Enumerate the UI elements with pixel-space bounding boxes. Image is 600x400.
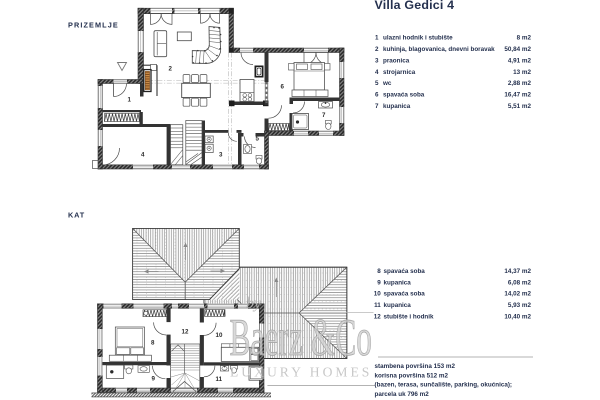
svg-text:ulazni hodnik i stubište: ulazni hodnik i stubište bbox=[383, 35, 453, 42]
svg-text:5: 5 bbox=[256, 136, 260, 143]
svg-text:Baerz &Co: Baerz &Co bbox=[230, 309, 372, 367]
svg-text:13 m2: 13 m2 bbox=[513, 69, 531, 76]
svg-text:KAT: KAT bbox=[68, 211, 85, 220]
svg-text:8: 8 bbox=[151, 340, 155, 347]
svg-text:parcela uk 796 m2: parcela uk 796 m2 bbox=[375, 391, 430, 398]
svg-text:kupanica: kupanica bbox=[384, 302, 412, 309]
svg-text:spavaća soba: spavaća soba bbox=[383, 92, 425, 99]
svg-text:6: 6 bbox=[281, 84, 285, 91]
svg-text:2: 2 bbox=[169, 66, 173, 73]
svg-text:12: 12 bbox=[182, 329, 189, 336]
svg-text:LUXURY HOMES: LUXURY HOMES bbox=[230, 365, 372, 380]
svg-text:9: 9 bbox=[152, 376, 156, 383]
svg-text:5: 5 bbox=[375, 80, 379, 87]
svg-text:7: 7 bbox=[322, 112, 326, 119]
svg-text:praonica: praonica bbox=[383, 57, 410, 64]
svg-text:stambena površina 153 m2: stambena površina 153 m2 bbox=[375, 363, 456, 370]
svg-text:strojarnica: strojarnica bbox=[383, 69, 416, 76]
svg-text:spavaća soba: spavaća soba bbox=[384, 291, 426, 298]
svg-text:14,37 m2: 14,37 m2 bbox=[504, 268, 531, 275]
svg-text:6,08 m2: 6,08 m2 bbox=[508, 279, 532, 286]
svg-text:1: 1 bbox=[375, 35, 379, 42]
svg-text:6: 6 bbox=[375, 92, 379, 99]
svg-text:12: 12 bbox=[374, 313, 382, 320]
svg-text:9: 9 bbox=[377, 279, 381, 286]
svg-text:Villa Gedici 4: Villa Gedici 4 bbox=[375, 0, 455, 12]
svg-text:kupanica: kupanica bbox=[383, 103, 411, 110]
svg-text:by: by bbox=[246, 295, 262, 312]
svg-text:kuhinja, blagovanica, dnevni b: kuhinja, blagovanica, dnevni boravak bbox=[383, 46, 495, 53]
svg-text:14,02 m2: 14,02 m2 bbox=[504, 291, 531, 298]
svg-text:stubište i hodnik: stubište i hodnik bbox=[384, 313, 435, 320]
svg-text:(bazen, terasa, sunčalište, pa: (bazen, terasa, sunčalište, parking, oku… bbox=[375, 382, 513, 389]
svg-text:1: 1 bbox=[128, 97, 132, 104]
svg-text:7: 7 bbox=[375, 103, 379, 110]
svg-text:8: 8 bbox=[377, 268, 381, 275]
svg-text:2: 2 bbox=[375, 46, 379, 53]
svg-text:wc: wc bbox=[382, 80, 392, 87]
svg-text:4,91 m2: 4,91 m2 bbox=[508, 57, 532, 64]
svg-text:spavaća soba: spavaća soba bbox=[384, 268, 426, 275]
svg-text:5,51 m2: 5,51 m2 bbox=[508, 103, 532, 110]
svg-text:50,84 m2: 50,84 m2 bbox=[504, 46, 531, 53]
svg-text:korisna površina 512 m2: korisna površina 512 m2 bbox=[375, 372, 449, 379]
svg-text:8 m2: 8 m2 bbox=[517, 35, 532, 42]
svg-text:11: 11 bbox=[216, 376, 223, 383]
svg-text:16,47 m2: 16,47 m2 bbox=[504, 92, 531, 99]
svg-text:10: 10 bbox=[216, 332, 223, 339]
svg-text:4: 4 bbox=[375, 69, 379, 76]
svg-text:4: 4 bbox=[141, 152, 145, 159]
svg-text:10: 10 bbox=[374, 291, 382, 298]
svg-text:3: 3 bbox=[375, 57, 379, 64]
svg-text:10,40 m2: 10,40 m2 bbox=[504, 313, 531, 320]
svg-text:kupanica: kupanica bbox=[384, 279, 412, 286]
svg-text:11: 11 bbox=[374, 302, 381, 309]
svg-text:2,88 m2: 2,88 m2 bbox=[508, 80, 532, 87]
svg-text:PRIZEMLJE: PRIZEMLJE bbox=[68, 21, 119, 30]
svg-text:5,93 m2: 5,93 m2 bbox=[508, 302, 532, 309]
svg-text:3: 3 bbox=[219, 152, 223, 159]
